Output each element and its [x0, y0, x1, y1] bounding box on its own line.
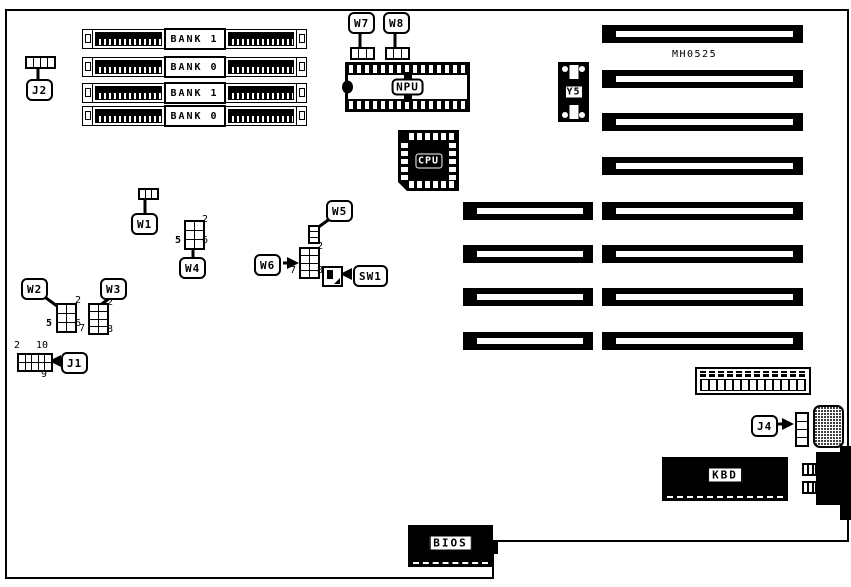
bios-label: BIOS [429, 535, 472, 550]
npu-body: NPU [348, 75, 467, 99]
kbd-notch-line [667, 496, 783, 498]
simm-contact-strip [228, 86, 295, 100]
j1-pin10-label: 10 [36, 341, 48, 351]
w2-jumper-block [56, 303, 77, 333]
bios-notch-line [413, 562, 488, 564]
w4-pin6-label: 6 [202, 236, 208, 246]
bank-label: BANK 0 [164, 105, 226, 127]
w4-pin2-label: 2 [202, 215, 208, 225]
j4-header [795, 412, 809, 447]
sw1-switch [322, 266, 343, 287]
power-connector [695, 367, 811, 395]
w3-pin8-label: 8 [107, 325, 113, 335]
bank-label: BANK 0 [164, 56, 226, 78]
bank-label: BANK 1 [164, 28, 226, 50]
cpu-pads [449, 141, 456, 180]
kbd-chip: KBD [662, 457, 788, 501]
expansion-slot-segment [463, 245, 593, 263]
w6-callout: W6 [254, 254, 281, 276]
w2-pin5-label: 5 [46, 319, 52, 329]
kbd-label: KBD [708, 468, 742, 483]
bank-label: BANK 1 [164, 82, 226, 104]
w5-callout: W5 [326, 200, 353, 222]
expansion-slot [602, 157, 803, 175]
cpu-socket: CPU [398, 130, 459, 191]
simm-clip-icon [83, 84, 93, 102]
j1-callout: J1 [61, 352, 88, 374]
simm-clip-icon [296, 30, 306, 48]
cpu-pads [409, 133, 454, 140]
simm-contact-strip [95, 86, 162, 100]
bios-tab [492, 540, 498, 554]
j2-callout: J2 [26, 79, 53, 101]
npu-socket: NPU [345, 62, 470, 112]
simm-clip-icon [83, 30, 93, 48]
part-number: MH0525 [672, 49, 717, 60]
w8-callout: W8 [383, 12, 410, 34]
din-pin-icon [802, 481, 817, 494]
expansion-slot-segment [463, 332, 593, 350]
cpu-pads [401, 141, 408, 180]
expansion-slot [602, 288, 803, 306]
expansion-slot [602, 202, 803, 220]
j1-pin9-label: 9 [41, 370, 47, 380]
w4-callout: W4 [179, 257, 206, 279]
simm-socket-row2: BANK 0 [82, 57, 307, 77]
w7-jumper [350, 47, 375, 60]
expansion-slot [602, 332, 803, 350]
simm-contact-strip [228, 109, 295, 123]
w1-jumper [138, 188, 159, 200]
npu-notch-icon [342, 81, 353, 94]
motherboard-layout-diagram: BANK 1 BANK 0 BANK 1 BANK 0 J2 W7 W8 NPU [0, 0, 851, 587]
j1-header-block [17, 353, 53, 372]
w2-pin2-label: 2 [75, 296, 81, 306]
cpu-pads [409, 181, 454, 188]
bios-chip: BIOS [408, 525, 493, 567]
y5-label: Y5 [564, 86, 582, 99]
j1-pin2-label: 2 [14, 341, 20, 351]
simm-socket-row4: BANK 0 [82, 106, 307, 126]
expansion-slot-segment [463, 288, 593, 306]
simm-socket-row3: BANK 1 [82, 83, 307, 103]
npu-pin-row [348, 101, 467, 109]
w1-callout: W1 [131, 213, 158, 235]
w3-jumper-block [88, 303, 109, 335]
cpu-label: CPU [415, 153, 442, 168]
expansion-slot-segment [463, 202, 593, 220]
simm-clip-icon [296, 58, 306, 76]
w3-pin7-label: 7 [79, 324, 85, 334]
sw1-callout: SW1 [353, 265, 388, 287]
simm-clip-icon [83, 58, 93, 76]
simm-clip-icon [296, 84, 306, 102]
expansion-slot [602, 113, 803, 131]
simm-clip-icon [83, 107, 93, 125]
simm-socket-row1: BANK 1 [82, 29, 307, 49]
w2-callout: W2 [21, 278, 48, 300]
expansion-slot [602, 70, 803, 88]
j4-callout: J4 [751, 415, 778, 437]
speaker-connector [813, 405, 844, 448]
expansion-slot [602, 245, 803, 263]
simm-contact-strip [95, 60, 162, 74]
simm-contact-strip [95, 32, 162, 46]
w7-callout: W7 [348, 12, 375, 34]
w8-jumper [385, 47, 410, 60]
j4-arrow-icon [782, 418, 794, 430]
w6-pin7-label: 7 [290, 266, 296, 276]
keyboard-din-connector-edge [840, 446, 851, 520]
w6-pin2-label: 2 [317, 242, 323, 252]
power-connector-sockets [700, 379, 806, 391]
simm-contact-strip [228, 32, 295, 46]
npu-label: NPU [391, 79, 424, 96]
simm-contact-strip [228, 60, 295, 74]
simm-clip-icon [296, 107, 306, 125]
w3-callout: W3 [100, 278, 127, 300]
din-pin-icon [802, 463, 817, 476]
j2-header [25, 56, 56, 69]
y5-oscillator: Y5 [558, 62, 589, 122]
power-connector-pins [700, 371, 806, 377]
simm-contact-strip [95, 109, 162, 123]
w4-pin5-label: 5 [175, 236, 181, 246]
w6-pin8-label: 8 [317, 266, 323, 276]
expansion-slot [602, 25, 803, 43]
